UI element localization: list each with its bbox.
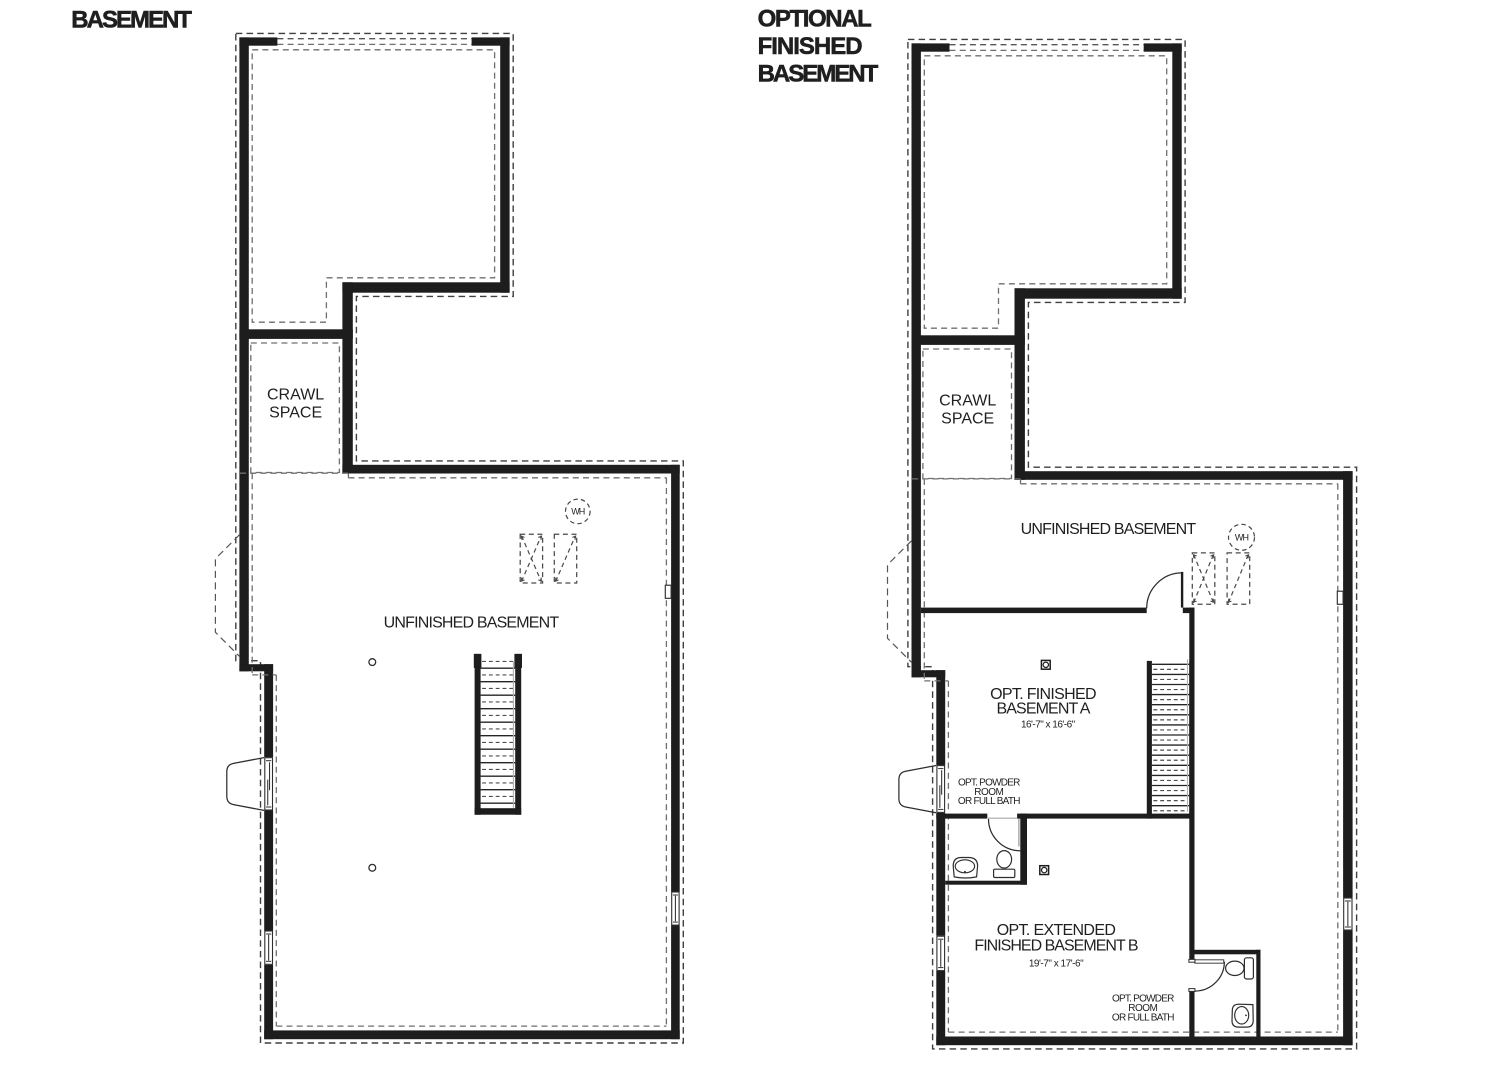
svg-text:OR FULL BATH: OR FULL BATH [1112, 1013, 1174, 1024]
svg-text:WH: WH [571, 507, 585, 517]
svg-text:OPT. EXTENDED: OPT. EXTENDED [997, 922, 1116, 939]
svg-text:UNFINISHED BASEMENT: UNFINISHED BASEMENT [384, 615, 560, 632]
svg-text:BASEMENT: BASEMENT [758, 61, 879, 88]
svg-text:OR FULL BATH: OR FULL BATH [958, 796, 1020, 807]
svg-text:FINISHED: FINISHED [758, 33, 863, 60]
svg-text:16'-7" x 16'-6": 16'-7" x 16'-6" [1021, 719, 1076, 730]
svg-text:SPACE: SPACE [269, 404, 322, 421]
svg-text:FINISHED BASEMENT B: FINISHED BASEMENT B [974, 937, 1137, 954]
svg-text:CRAWL: CRAWL [267, 386, 324, 403]
svg-text:OPTIONAL: OPTIONAL [758, 5, 872, 32]
svg-text:UNFINISHED BASEMENT: UNFINISHED BASEMENT [1021, 521, 1197, 538]
svg-text:BASEMENT A: BASEMENT A [996, 700, 1090, 717]
svg-text:WH: WH [1235, 533, 1249, 543]
svg-text:CRAWL: CRAWL [939, 392, 996, 409]
svg-text:BASEMENT: BASEMENT [71, 6, 192, 33]
svg-text:19'-7" x 17'-6": 19'-7" x 17'-6" [1029, 958, 1084, 969]
svg-text:SPACE: SPACE [941, 410, 994, 427]
